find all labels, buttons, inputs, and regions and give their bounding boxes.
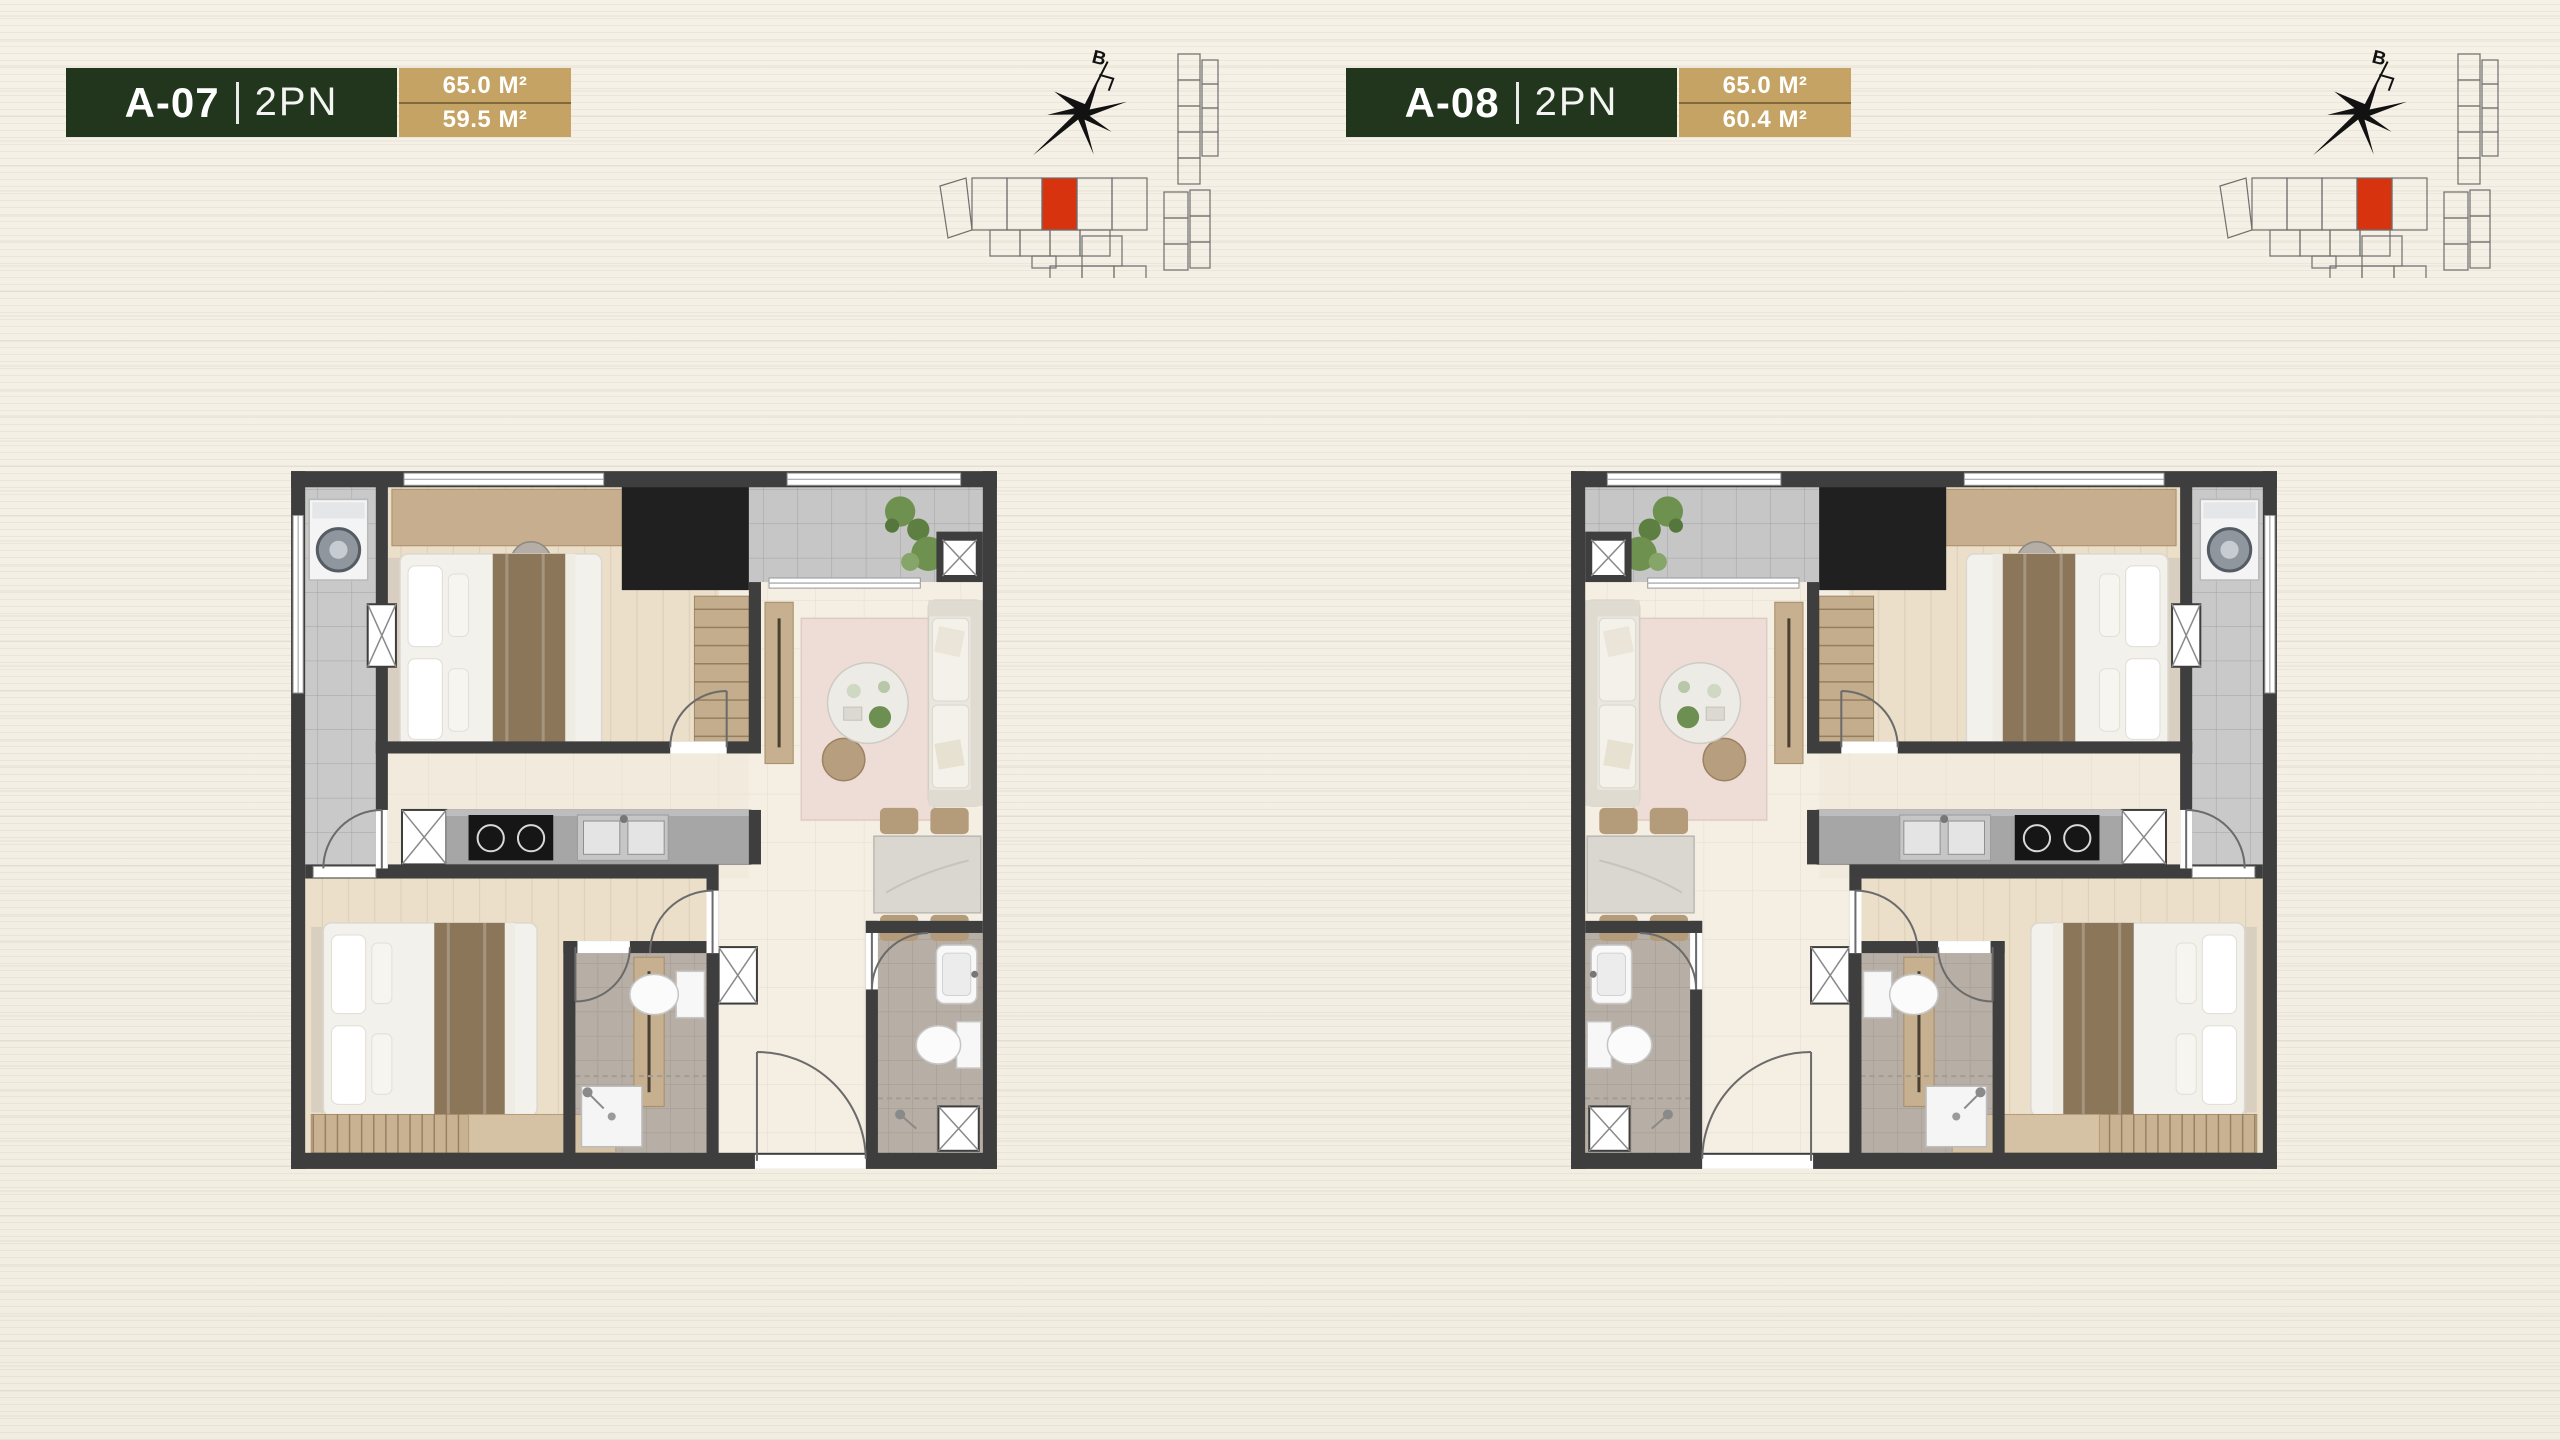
keyplan-map — [2212, 40, 2504, 278]
unit-panel-a08: A-08 2PN 65.0 M² 60.4 M² B — [1280, 0, 2560, 1440]
floorplan-a08 — [1563, 455, 2285, 1177]
unit-code-chip: A-07 2PN — [66, 68, 397, 137]
area-net: 60.4 M² — [1679, 104, 1851, 136]
keyplan-highlighted-unit — [2357, 178, 2392, 230]
keyplan: B — [932, 40, 1224, 278]
unit-type: 2PN — [1535, 80, 1619, 125]
chip-separator — [1516, 82, 1519, 124]
keyplan: B — [2212, 40, 2504, 278]
floorplan-a07 — [283, 455, 1005, 1177]
unit-type: 2PN — [255, 80, 339, 125]
unit-area-chip: 65.0 M² 60.4 M² — [1679, 68, 1851, 137]
keyplan-highlighted-unit — [1042, 178, 1077, 230]
unit-panel-a07: A-07 2PN 65.0 M² 59.5 M² B — [0, 0, 1280, 1440]
area-construction: 65.0 M² — [1679, 70, 1851, 102]
floorplan-sheet: A-07 2PN 65.0 M² 59.5 M² B A-08 — [0, 0, 2560, 1440]
keyplan-map — [932, 40, 1224, 278]
area-net: 59.5 M² — [399, 104, 571, 136]
area-construction: 65.0 M² — [399, 70, 571, 102]
chip-separator — [236, 82, 239, 124]
unit-code: A-08 — [1405, 79, 1500, 127]
unit-code-chip: A-08 2PN — [1346, 68, 1677, 137]
unit-area-chip: 65.0 M² 59.5 M² — [399, 68, 571, 137]
unit-header: A-07 2PN 65.0 M² 59.5 M² — [66, 68, 571, 137]
unit-code: A-07 — [125, 79, 220, 127]
unit-header: A-08 2PN 65.0 M² 60.4 M² — [1346, 68, 1851, 137]
